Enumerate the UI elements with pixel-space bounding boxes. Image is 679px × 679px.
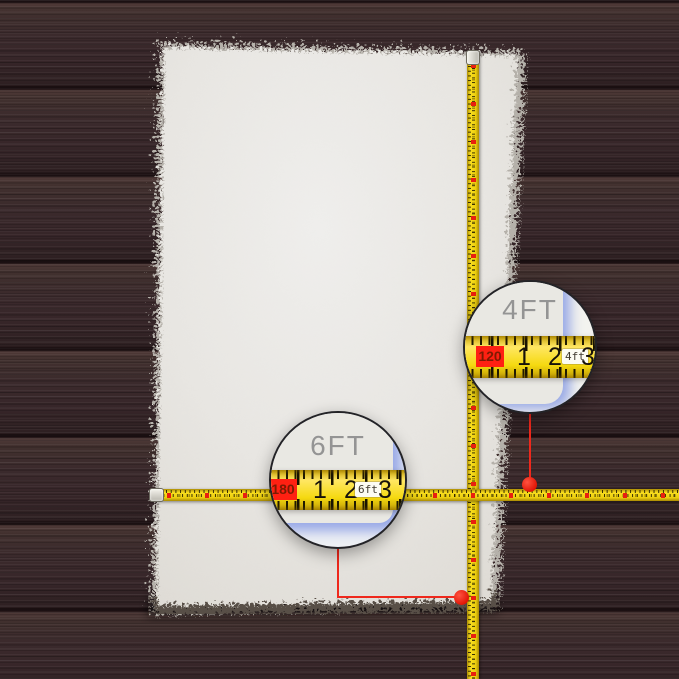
tape-unit-badge: 6ft <box>355 482 381 497</box>
length-measurement-dot <box>454 590 469 605</box>
length-magnifier-callout: 6FT 180 1 2 6ft 3 <box>269 411 407 549</box>
width-label: 4FT <box>465 294 595 326</box>
tape-end-clip-icon <box>149 488 164 502</box>
width-magnifier-callout: 4FT 120 1 2 4ft 3 <box>463 280 597 414</box>
tape-number: 2 <box>548 343 562 372</box>
magnified-tape-width: 120 1 2 4ft 3 <box>463 336 597 378</box>
length-connector-line-horizontal <box>337 596 456 598</box>
rug-product-photo: 4FT 120 1 2 4ft 3 6FT 180 1 2 6ft 3 <box>0 0 679 679</box>
length-connector-line-vertical <box>337 547 339 598</box>
tape-start-badge: 180 <box>269 479 297 500</box>
horizontal-measuring-tape <box>152 489 679 501</box>
tape-number: 3 <box>378 476 392 505</box>
width-connector-line <box>529 412 531 480</box>
tape-number: 1 <box>517 343 531 372</box>
tape-start-badge: 120 <box>476 346 504 367</box>
length-label: 6FT <box>271 430 405 462</box>
tape-end-clip-icon <box>466 50 480 65</box>
tape-number: 1 <box>313 476 327 505</box>
tape-number: 3 <box>581 343 595 372</box>
magnified-tape-length: 180 1 2 6ft 3 <box>269 470 407 510</box>
width-measurement-dot <box>522 477 537 492</box>
